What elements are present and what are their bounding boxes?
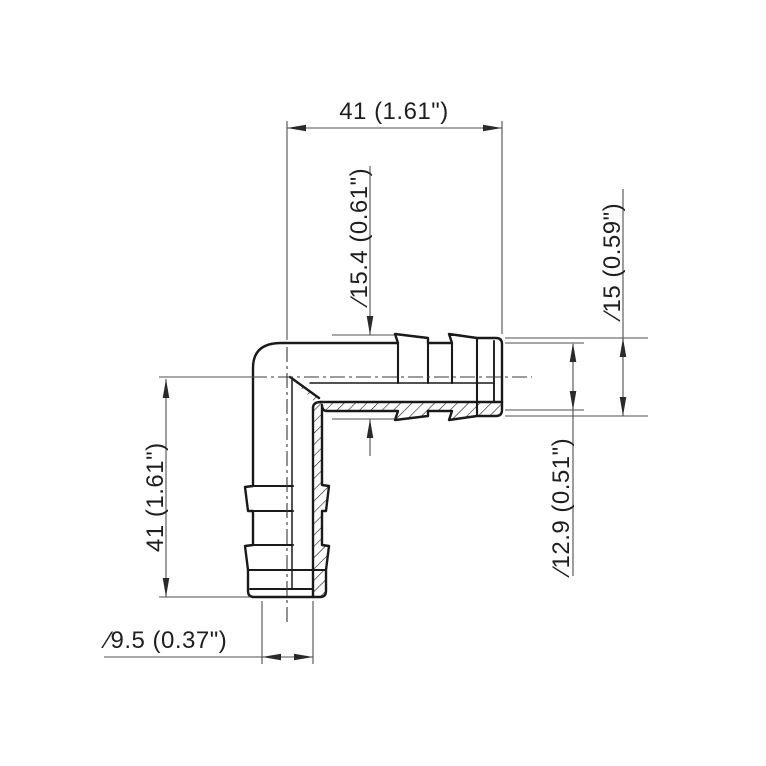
dimension-arrowheads: [163, 125, 627, 661]
corner-chamfer-edge: [290, 377, 319, 398]
outer-profile: [245, 334, 502, 597]
technical-drawing-page: 41 (1.61") ∕15.4 (0.61") ∕15 (0.59") ∕12…: [0, 0, 766, 766]
centerlines: [252, 347, 532, 622]
arrow-down-icon: [570, 391, 577, 410]
dimension-left-length: [159, 377, 256, 597]
arrow-up-icon: [620, 338, 627, 357]
dim-label-left-length: 41 (1.61"): [142, 442, 169, 552]
dimension-top-length: [287, 121, 502, 340]
dim-label-top-length: 41 (1.61"): [339, 98, 449, 125]
part-outline: [245, 334, 502, 597]
arrow-down-icon: [367, 316, 374, 335]
arrow-left-icon: [287, 125, 306, 132]
arrow-up-icon: [367, 419, 374, 438]
arrow-up-icon: [570, 343, 577, 362]
arrow-right-icon: [294, 654, 313, 661]
dim-label-end-od: ∕15 (0.59"): [599, 203, 626, 322]
dim-label-barb-od: ∕15.4 (0.61"): [346, 168, 373, 308]
dimension-labels: 41 (1.61") ∕15.4 (0.61") ∕15 (0.59") ∕12…: [101, 98, 626, 654]
elbow-hose-barb-drawing: 41 (1.61") ∕15.4 (0.61") ∕15 (0.59") ∕12…: [0, 0, 766, 766]
dim-label-bore-id: ∕9.5 (0.37"): [101, 627, 227, 654]
arrow-up-icon: [163, 379, 170, 398]
arrow-down-icon: [163, 578, 170, 597]
arrow-left-icon: [262, 654, 281, 661]
dimension-end-od: [505, 189, 648, 416]
arrow-right-icon: [483, 125, 502, 132]
dim-label-shank-od: ∕12.9 (0.51"): [548, 438, 575, 578]
arrow-down-icon: [620, 397, 627, 416]
